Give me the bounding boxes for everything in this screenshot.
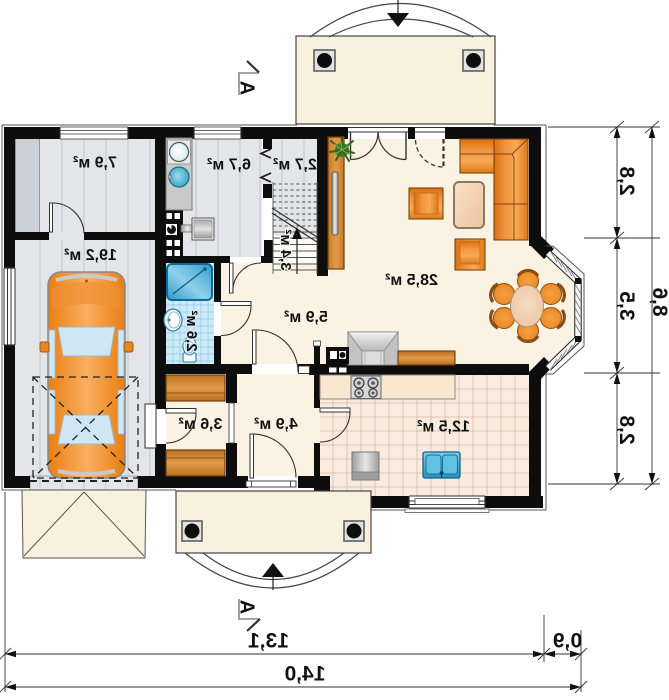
svg-text:28,5 м²: 28,5 м² — [385, 272, 438, 289]
svg-text:6,7 м²: 6,7 м² — [207, 157, 251, 174]
svg-text:A: A — [236, 600, 258, 614]
svg-text:7,9 м²: 7,9 м² — [73, 155, 117, 172]
svg-text:2,7 м²: 2,7 м² — [273, 157, 317, 174]
svg-text:A: A — [236, 81, 258, 95]
svg-text:0,9: 0,9 — [553, 630, 582, 653]
svg-text:5,9 м²: 5,9 м² — [284, 309, 328, 326]
svg-text:3,5: 3,5 — [615, 291, 638, 321]
svg-text:3,6 м²: 3,6 м² — [179, 416, 223, 433]
svg-text:19,2 м²: 19,2 м² — [64, 247, 117, 264]
svg-text:12,5 м²: 12,5 м² — [417, 419, 470, 436]
svg-text:3,4 м²: 3,4 м² — [277, 229, 294, 270]
svg-text:8,6: 8,6 — [648, 287, 669, 316]
svg-text:13,1: 13,1 — [248, 630, 289, 653]
svg-text:4,9 м²: 4,9 м² — [254, 416, 298, 433]
svg-text:2,6 м²: 2,6 м² — [183, 310, 200, 351]
svg-text:2,8: 2,8 — [615, 166, 638, 196]
svg-text:14,0: 14,0 — [285, 663, 326, 686]
svg-text:2,8: 2,8 — [615, 415, 638, 445]
